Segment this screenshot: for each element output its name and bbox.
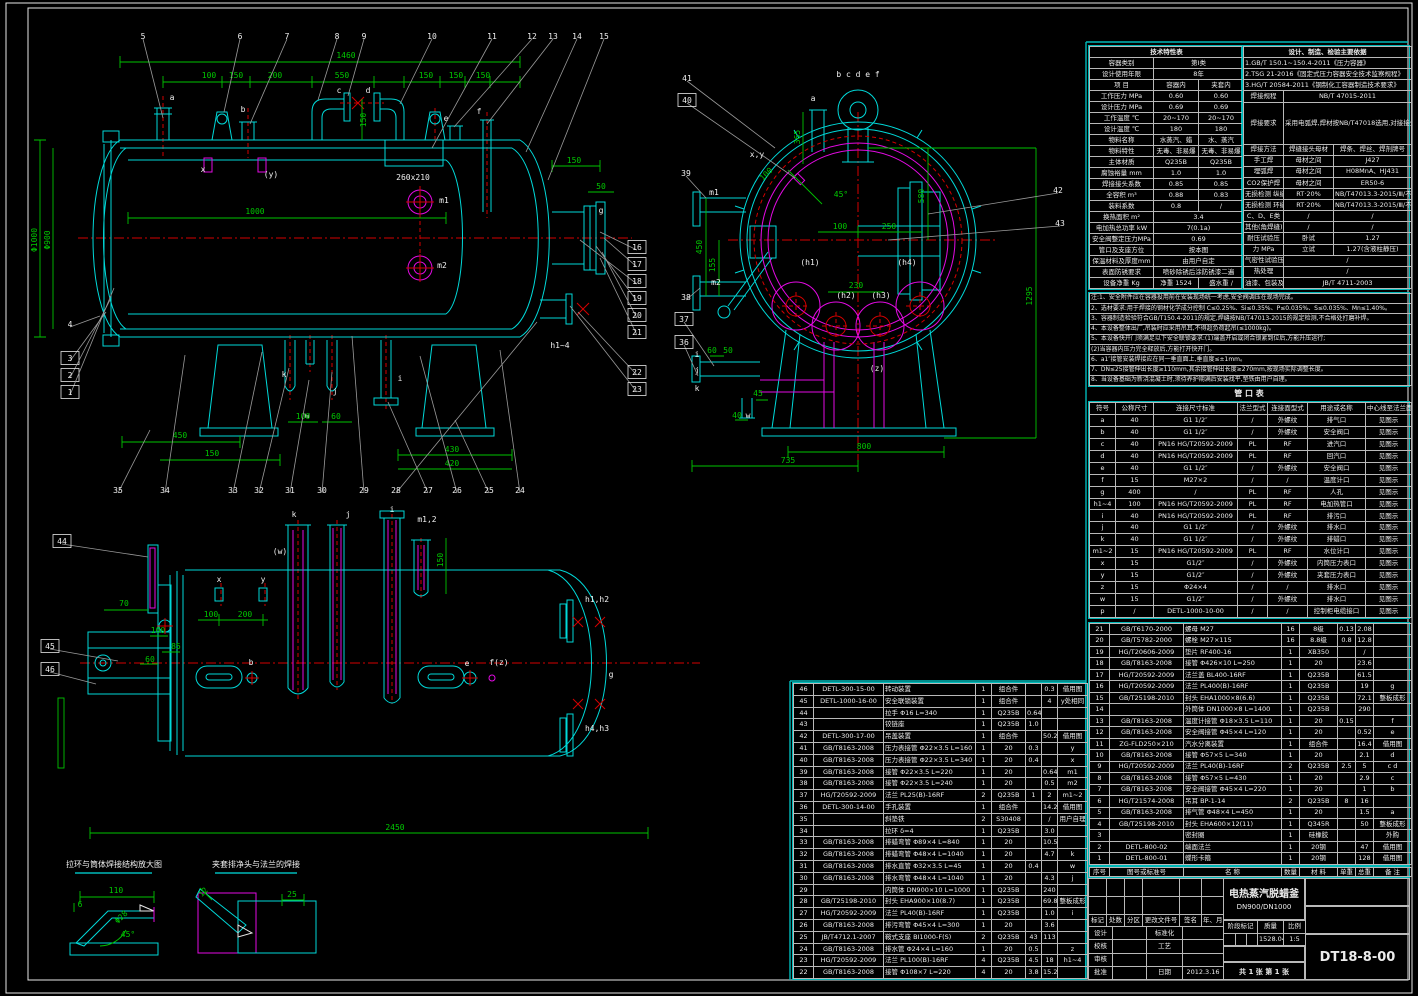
drawing-label: i — [390, 505, 395, 514]
part-balloon: 3 — [68, 354, 73, 363]
table-cell: 1 — [1282, 646, 1300, 657]
drawing-label: i — [695, 350, 700, 359]
table-cell — [1026, 849, 1042, 861]
table-cell: 材 料 — [1300, 868, 1338, 877]
table-cell: 0.3 — [1042, 684, 1058, 696]
drawing-label: 230 — [849, 281, 864, 290]
drawing-label: g — [599, 206, 604, 215]
table-cell: 0.8 — [1338, 635, 1356, 646]
table-cell — [1202, 879, 1224, 897]
drawing-label: y — [261, 575, 266, 584]
stage-weight-scale: 阶段标记质量比例1528.041:5 — [1223, 920, 1305, 946]
table-cell: 外螺纹 — [1268, 558, 1308, 570]
table-cell: 接管 Φ108×7 L=220 — [884, 967, 976, 979]
table-cell: / — [1268, 474, 1308, 486]
table-cell: 0.13 — [1338, 624, 1356, 635]
drawing-label: 550 — [335, 71, 350, 80]
table-cell: 3 — [1090, 830, 1110, 841]
table-cell: GB/T25198-2010 — [1110, 692, 1184, 703]
table-cell: 3.HG/T 20584-2011《钢制化工容器制造技术要求》 — [1244, 80, 1412, 91]
table-cell: Q235B — [1199, 157, 1244, 168]
drawing-label: 420 — [445, 459, 460, 468]
table-cell: 10.5 — [1042, 837, 1058, 849]
table-cell: 12 — [1090, 727, 1110, 738]
table-cell: 容器内 — [1154, 80, 1199, 91]
table-cell: 借用图 — [1058, 731, 1088, 743]
table-cell: 50.2 — [1042, 731, 1058, 743]
table-cell: 1 — [976, 731, 992, 743]
table-cell: 夹套内 — [1199, 80, 1244, 91]
table-cell — [1125, 879, 1143, 897]
balloon-leader — [290, 380, 309, 493]
drawing-label: 60 — [707, 346, 717, 355]
table-cell: DETL-300-17-00 — [814, 731, 884, 743]
table-cell: 15 — [1116, 582, 1154, 594]
table-cell: h1~4 — [1090, 498, 1116, 510]
table-cell: / — [1042, 813, 1058, 825]
table-cell: 1 — [976, 801, 992, 813]
drawing-label: 150 — [419, 71, 434, 80]
table-cell: 1.0 — [1199, 168, 1244, 179]
table-cell: 符号 — [1090, 403, 1116, 415]
table-cell: 4 — [976, 967, 992, 979]
table-cell: 19 — [1090, 646, 1110, 657]
table-cell: z — [1058, 943, 1088, 955]
table-cell: 控制柜电缆接口 — [1308, 605, 1366, 617]
table-cell — [1026, 825, 1042, 837]
table-cell: 20~170 — [1154, 113, 1199, 124]
table-cell: 无毒、非易爆 — [1199, 146, 1244, 157]
table-cell — [1338, 646, 1356, 657]
part-balloon: 27 — [423, 486, 433, 495]
table-cell: 外螺纹 — [1268, 570, 1308, 582]
table-cell: / — [1238, 570, 1268, 582]
table-cell: 设计压力 MPa — [1090, 102, 1154, 113]
table-cell: 见图示 — [1366, 426, 1412, 438]
table-cell: 20 — [992, 919, 1026, 931]
table-cell: GB/T8163-2008 — [814, 766, 884, 778]
table-cell: 0.5 — [1026, 943, 1042, 955]
table-cell: 组合件 — [992, 731, 1026, 743]
table-cell: 1 — [976, 719, 992, 731]
part-balloon: 14 — [572, 32, 582, 41]
table-cell: 无损检测 环缝 — [1244, 200, 1284, 211]
table-cell: 1 — [1282, 704, 1300, 715]
table-cell: 接管 Φ57×5 L=430 — [1184, 773, 1282, 784]
table-cell: 26 — [794, 919, 814, 931]
table-cell: 2.TSG 21-2016《固定式压力容器安全技术监察规程》 — [1244, 69, 1412, 80]
drawing-label: 150 — [476, 71, 491, 80]
table-cell: / — [1154, 486, 1238, 498]
table-cell: GB/T8163-2008 — [1110, 773, 1184, 784]
table-cell: 封头 EHA1000×8(6.6) — [1184, 692, 1282, 703]
part-balloon: 33 — [228, 486, 238, 495]
drawing-label: g — [609, 670, 614, 679]
table-cell: 夹套压力表口 — [1308, 570, 1366, 582]
notes-table: 注:1、安全附件应在容器投用前在安装现场统一考虑,安全阀调压在现场完成。2、选材… — [1088, 292, 1410, 387]
drawing-label: 155 — [708, 258, 717, 273]
table-cell: 外螺纹 — [1268, 426, 1308, 438]
table-cell: 1 — [1282, 818, 1300, 829]
table-cell: G1 1/2″ — [1154, 462, 1238, 474]
table-cell — [1125, 897, 1143, 915]
table-cell: d — [1090, 450, 1116, 462]
table-cell: 蝶形卡箍 — [1184, 853, 1282, 865]
table-cell: G1/2″ — [1154, 558, 1238, 570]
table-cell: 母材之间 — [1284, 155, 1334, 166]
table-cell: 审核 — [1089, 953, 1113, 966]
table-cell: 1.27 — [1334, 233, 1412, 244]
table-cell: 2 — [1282, 796, 1300, 807]
table-cell: 0.60 — [1199, 91, 1244, 102]
table-cell: 7(0.1a) — [1154, 223, 1244, 234]
drawing-label: (y) — [264, 170, 278, 179]
table-cell: 法兰盖 BL400-16RF — [1184, 669, 1282, 680]
drawing-label: 110 — [109, 886, 124, 895]
table-cell: 0.4 — [1026, 860, 1042, 872]
table-cell: 接管 Φ57×5 L=340 — [1184, 750, 1282, 761]
drawing-label: f(z) — [489, 658, 508, 667]
table-cell — [1338, 750, 1356, 761]
table-cell: PN16 HG/T20592-2009 — [1154, 438, 1238, 450]
balloon-leader — [687, 81, 775, 148]
table-cell: Q235B — [992, 790, 1026, 802]
table-cell: 法兰 PL40(B)-16RF — [1184, 761, 1282, 772]
table-cell: 设计 — [1089, 927, 1113, 940]
table-cell — [1026, 872, 1042, 884]
table-cell: 1 — [976, 778, 992, 790]
table-cell: 17 — [1090, 669, 1110, 680]
table-cell: 焊缝接头母材 — [1284, 144, 1334, 155]
table-cell — [1180, 879, 1202, 897]
table-cell: 180 — [1154, 124, 1199, 135]
part-balloon: 9 — [362, 32, 367, 41]
table-cell — [1338, 784, 1356, 795]
part-balloon: 24 — [515, 486, 525, 495]
table-cell: / — [1268, 582, 1308, 594]
table-cell: PL — [1238, 546, 1268, 558]
signature-grid: 设计标准化校核工艺审核批准日期2012.3.16 — [1088, 926, 1223, 980]
table-cell: 物料特性 — [1090, 146, 1154, 157]
table-cell: 27 — [794, 908, 814, 920]
table-cell: 力 MPa — [1244, 244, 1284, 255]
table-cell: 排水口 — [1308, 582, 1366, 594]
drawing-label: Φ1000 — [30, 228, 39, 252]
table-cell: 温度计口 — [1308, 474, 1366, 486]
drawing-label: h1,h2 — [585, 595, 609, 604]
table-cell: 20 — [992, 943, 1026, 955]
table-cell: 腐蚀裕量 mm — [1090, 168, 1154, 179]
table-cell: 38 — [794, 778, 814, 790]
table-cell: 20 — [992, 837, 1026, 849]
table-cell: 1 — [976, 943, 992, 955]
table-cell — [1356, 830, 1374, 841]
table-cell: 容器类别 — [1090, 58, 1154, 69]
table-cell: 37 — [794, 790, 814, 802]
part-balloon: 21 — [632, 328, 642, 337]
drawing-subtitle: DN900/DN1000 — [1224, 903, 1304, 911]
table-cell: 安全阀口 — [1308, 426, 1366, 438]
table-cell: GB/T8163-2008 — [814, 860, 884, 872]
table-cell: 16.4 — [1356, 738, 1374, 749]
table-cell: 20 — [992, 778, 1026, 790]
drawing-label: 100 — [833, 222, 848, 231]
table-cell: 净重 1524 — [1154, 278, 1199, 289]
part-balloon: 18 — [632, 277, 642, 286]
title-box: 电热蒸汽脱蜡釜 DN900/DN1000 — [1223, 878, 1305, 920]
table-cell: 进汽口 — [1308, 438, 1366, 450]
drawing-label: 100 — [204, 610, 219, 619]
table-cell: Q235B — [1300, 704, 1338, 715]
table-cell — [1224, 933, 1236, 946]
drawing-label: m1,2 — [417, 515, 436, 524]
table-cell: 备 注 — [1374, 868, 1412, 877]
table-cell: 44 — [794, 707, 814, 719]
table-cell: 封头 EHA600×12(11) — [1184, 818, 1282, 829]
table-cell: 15 — [1116, 570, 1154, 582]
table-cell: 单重 — [1338, 868, 1356, 877]
table-cell: DETL-1000-16-00 — [814, 695, 884, 707]
table-cell: 1 — [976, 884, 992, 896]
table-cell: 工作压力 MPa — [1090, 91, 1154, 102]
table-cell: GB/T8163-2008 — [1110, 807, 1184, 818]
table-cell: 鞍式支座 BI1000-F(S) — [884, 931, 976, 943]
table-cell: 排蜡口 — [1308, 534, 1366, 546]
table-cell: 43 — [794, 719, 814, 731]
table-cell: Q235B — [1154, 157, 1199, 168]
table-cell: 3.6 — [1042, 919, 1058, 931]
part-balloon: 40 — [682, 96, 692, 105]
table-cell: 20 — [1300, 750, 1338, 761]
table-cell: G1 1/2″ — [1154, 414, 1238, 426]
table-cell: 螺栓 M27×115 — [1184, 635, 1282, 646]
table-cell: 36 — [794, 801, 814, 813]
table-cell: GB/T8163-2008 — [814, 943, 884, 955]
table-cell — [814, 813, 884, 825]
table-cell: 290 — [1356, 704, 1374, 715]
balloon-leader — [526, 39, 577, 152]
part-balloon: 42 — [1053, 186, 1063, 195]
table-cell: 1.27(含液柱静压) — [1334, 244, 1412, 255]
table-cell: 1 — [976, 872, 992, 884]
approval-box — [1305, 906, 1410, 934]
table-cell: 铰链座 — [884, 719, 976, 731]
table-cell — [1374, 658, 1412, 669]
table-cell: 1 — [1282, 669, 1300, 680]
drawing-label: 45° — [834, 190, 848, 199]
table-cell: C、D、E类 — [1244, 211, 1284, 222]
table-cell: 15.2 — [1042, 967, 1058, 979]
table-cell: k — [1058, 849, 1088, 861]
balloon-leader — [62, 544, 148, 557]
table-cell: 23 — [794, 955, 814, 967]
table-cell: GB/T8163-2008 — [814, 742, 884, 754]
table-cell: 比例 — [1284, 921, 1306, 934]
drawing-label: 100 — [758, 166, 775, 183]
drawing-label: 60 — [331, 412, 341, 421]
table-cell: RF — [1268, 498, 1308, 510]
drawing-label: 250 — [882, 222, 897, 231]
table-cell: 借用图 — [1374, 853, 1412, 865]
drawing-label: 1000 — [245, 207, 264, 216]
table-cell: 分区 — [1125, 915, 1143, 927]
table-cell: 5 — [1090, 807, 1110, 818]
table-cell: J427 — [1334, 155, 1412, 166]
table-cell — [1058, 707, 1088, 719]
table-cell: GB/T8163-2008 — [1110, 658, 1184, 669]
table-cell: 拉环 δ=4 — [884, 825, 976, 837]
drawing-label: 150 — [567, 156, 582, 165]
table-cell: DETL-300-15-00 — [814, 684, 884, 696]
table-cell: 外螺纹 — [1268, 522, 1308, 534]
part-balloon: 19 — [632, 294, 642, 303]
bom-right-table: 21GB/T6170-2000螺母 M27168级0.132.0820GB/T5… — [1088, 622, 1410, 866]
table-cell: M27×2 — [1154, 474, 1238, 486]
table-cell: 4 — [976, 955, 992, 967]
table-cell: 2.08 — [1356, 624, 1374, 635]
table-cell: 见图示 — [1366, 510, 1412, 522]
table-cell: 借用图 — [1058, 684, 1088, 696]
table-cell: 水位计口 — [1308, 546, 1366, 558]
table-cell: 标准化 — [1147, 927, 1183, 940]
table-cell: 15 — [1116, 474, 1154, 486]
table-cell: / — [1334, 222, 1412, 233]
table-cell: 4.7 — [1042, 849, 1058, 861]
table-cell: 20钢 — [1300, 841, 1338, 852]
table-cell: ER50-6 — [1334, 177, 1412, 188]
table-cell — [1042, 943, 1058, 955]
table-cell — [1183, 940, 1224, 953]
part-balloon: 45 — [45, 642, 55, 651]
drawing-sheet: { "sheet":{ "drawing_number":"DT18-8-00"… — [0, 0, 1418, 996]
table-cell — [1374, 646, 1412, 657]
balloon-leader — [686, 176, 706, 198]
balloon-leader — [420, 356, 457, 493]
table-cell: 图号或标准号 — [1110, 868, 1184, 877]
table-cell — [1026, 731, 1042, 743]
table-cell: 排污口 — [1308, 510, 1366, 522]
table-cell: 设备净重 Kg — [1090, 278, 1154, 289]
table-cell: 螺母 M27 — [1184, 624, 1282, 635]
table-cell: / — [1238, 462, 1268, 474]
table-cell — [1026, 684, 1042, 696]
table-cell: 接管 Φ22×3.5 L=240 — [884, 778, 976, 790]
table-cell: 设计、制造、检验主要依据 — [1244, 47, 1412, 58]
table-cell: 5 — [1356, 761, 1374, 772]
table-cell: 压力表接管 Φ22×3.5 L=340 — [884, 754, 976, 766]
table-cell — [1374, 796, 1412, 807]
table-cell: 1 — [1282, 692, 1300, 703]
table-cell: 25 — [794, 931, 814, 943]
table-cell: 整板成形 — [1374, 692, 1412, 703]
part-balloon: 30 — [317, 486, 327, 495]
drawing-label: 150 — [359, 113, 368, 128]
table-cell: 法兰 PL25(B)-16RF — [884, 790, 976, 802]
drawing-label: 12 — [197, 886, 210, 899]
balloon-leader — [570, 306, 637, 392]
table-cell: 40 — [1116, 414, 1154, 426]
table-cell: 8.8级 — [1300, 635, 1338, 646]
table-cell: 2 — [1042, 790, 1058, 802]
table-cell: 1528.04 — [1258, 933, 1284, 946]
table-cell: 签名 — [1180, 915, 1202, 927]
table-cell: PL — [1238, 450, 1268, 462]
front-dim-lines — [34, 56, 614, 469]
table-cell — [1247, 933, 1258, 946]
table-cell: GB/T8163-2008 — [814, 919, 884, 931]
table-cell: 外螺纹 — [1268, 594, 1308, 606]
drawing-label: 拉环与筒体焊接结构放大图 — [66, 859, 162, 869]
table-cell: 0.4 — [1026, 754, 1042, 766]
table-cell: 6、a1″接管安装焊接应在同一垂直面上,垂直度≤±1mm。 — [1090, 355, 1412, 365]
table-cell: 第Ⅰ类 — [1154, 58, 1244, 69]
table-cell — [814, 707, 884, 719]
table-cell: 4 — [1090, 818, 1110, 829]
table-cell: 转动装置 — [884, 684, 976, 696]
table-cell: / — [1284, 266, 1412, 277]
plan-view: k(w)jim1,2xybef(z)gh1,h2h4,h3 7010020015… — [41, 505, 700, 839]
balloon-leader — [455, 420, 489, 493]
table-cell: c — [1374, 773, 1412, 784]
balloon-leader — [70, 316, 100, 327]
table-cell — [1026, 766, 1042, 778]
table-cell: 113 — [1042, 931, 1058, 943]
table-cell: CO2保护焊 — [1244, 177, 1284, 188]
table-cell: 21 — [1090, 624, 1110, 635]
balloon-leader — [352, 336, 364, 493]
table-cell — [1026, 813, 1042, 825]
table-cell: PN16 HG/T20592-2009 — [1154, 450, 1238, 462]
table-cell: 项 目 — [1090, 80, 1154, 91]
part-balloon: 25 — [484, 486, 494, 495]
table-cell: 密封圈 — [1184, 830, 1282, 841]
table-cell: PL — [1238, 510, 1268, 522]
drawing-label: 580 — [917, 189, 926, 204]
table-cell: 接管 Φ22×3.5 L=220 — [884, 766, 976, 778]
table-cell: 总重 — [1356, 868, 1374, 877]
table-cell: 1 — [1090, 853, 1110, 865]
table-cell: 见图示 — [1366, 558, 1412, 570]
table-cell: 人孔 — [1308, 486, 1366, 498]
table-cell: Q235B — [992, 931, 1026, 943]
table-cell — [1338, 692, 1356, 703]
table-cell: 0.52 — [1356, 727, 1374, 738]
table-cell: 校核 — [1089, 940, 1113, 953]
table-cell: 2.1 — [1356, 750, 1374, 761]
table-cell: 180 — [1199, 124, 1244, 135]
table-cell: GB/T8163-2008 — [814, 849, 884, 861]
table-cell — [1058, 919, 1088, 931]
table-cell: 1 — [1282, 784, 1300, 795]
table-cell: 电加热总功率 kW — [1090, 223, 1154, 234]
table-cell: 1 — [1282, 681, 1300, 692]
revision-grid: 标记处数分区更改文件号签名年、月、日 — [1088, 878, 1223, 926]
table-cell: 1 — [976, 754, 992, 766]
table-cell: 由用户自定 — [1154, 256, 1244, 267]
table-cell: k — [1090, 534, 1116, 546]
drawing-label: m1 — [439, 196, 449, 205]
table-cell: 见图示 — [1366, 582, 1412, 594]
table-cell — [1110, 704, 1184, 715]
drawing-label: 60 — [145, 655, 155, 664]
end-view: b c d e fax,y45°m1m2(h1)(h2)(h3)(h4)ijkw… — [675, 70, 1065, 472]
table-cell: 1 — [1282, 830, 1300, 841]
table-cell: 排蜡弯管 Φ89×4 L=840 — [884, 837, 976, 849]
table-cell: 安全阀接管 Φ45×4 L=220 — [1184, 784, 1282, 795]
table-cell: HG/T20592-2009 — [1110, 681, 1184, 692]
table-cell: 1 — [1282, 727, 1300, 738]
table-cell: / — [1238, 534, 1268, 546]
